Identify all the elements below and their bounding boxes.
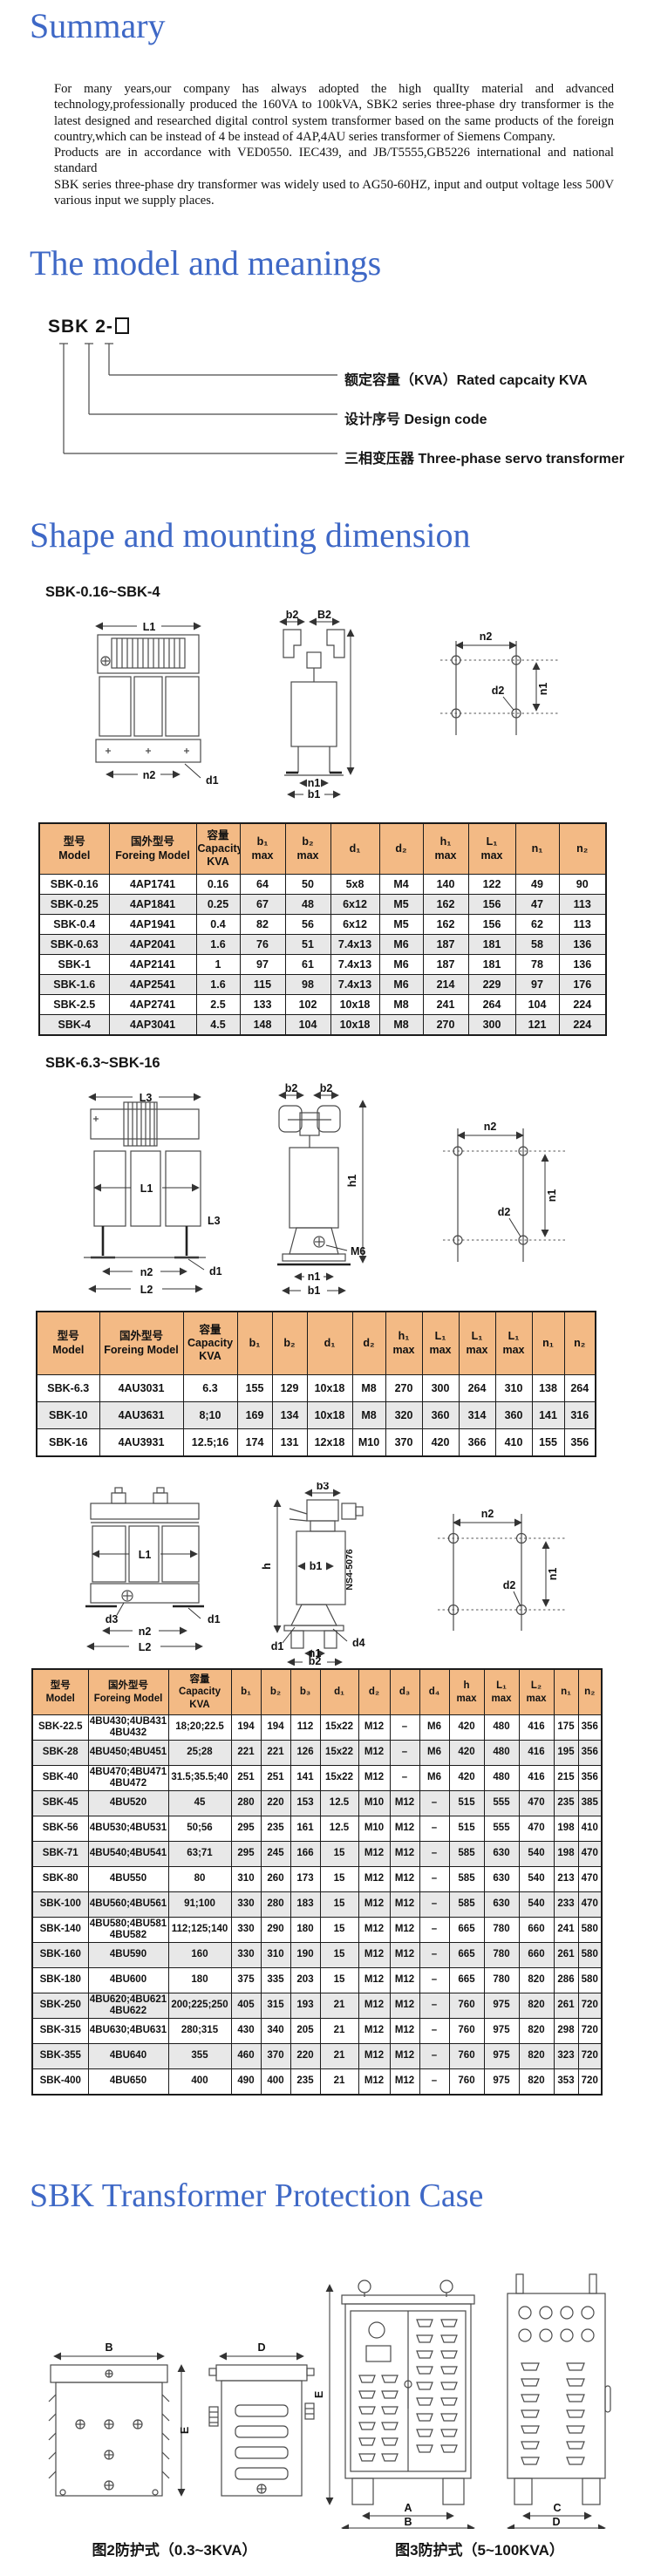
table3-header-cell: 容量 Capacity KVA (168, 1669, 231, 1715)
dim-label-E: E (179, 2427, 191, 2434)
table-cell: 470 (519, 1816, 554, 1842)
table-cell: 480 (484, 1766, 519, 1791)
table3-header-cell: b₂ (261, 1669, 290, 1715)
table-cell: 310 (261, 1943, 290, 1968)
dim-label-A: A (404, 2502, 412, 2514)
table-cell: 166 (290, 1842, 320, 1867)
set2-front-feet (84, 1226, 206, 1257)
dim-label-n1: n1 (308, 777, 321, 789)
table-row: SBK-44AP30414.514810410x18M8270300121224 (39, 1015, 606, 1036)
table-cell: 62 (515, 915, 559, 935)
table-cell: 10x18 (307, 1402, 352, 1429)
table-cell: 48 (285, 895, 330, 915)
table-cell: 194 (231, 1715, 261, 1741)
dim-label-n1: n1 (308, 1271, 321, 1283)
table-cell: 760 (449, 2069, 484, 2096)
dimension-drawing-set2: L3 L1 L3 d1 (0, 1083, 654, 1308)
table-cell: 4AP1841 (109, 895, 196, 915)
table-cell: M12 (390, 2019, 419, 2044)
table-cell: 4BU550 (88, 1867, 168, 1892)
table-cell: 63;71 (168, 1842, 231, 1867)
table-cell: – (390, 1715, 419, 1741)
table-cell: 6.3 (183, 1375, 237, 1402)
table-cell: 660 (519, 1943, 554, 1968)
table3-header-cell: b₁ (231, 1669, 261, 1715)
table-cell: 4BU650 (88, 2069, 168, 2096)
table-cell: 51 (285, 935, 330, 955)
table-cell: 220 (290, 2044, 320, 2069)
section1-label: SBK-0.16~SBK-4 (45, 584, 160, 601)
table-cell: 4BU580;4BU581 4BU582 (88, 1918, 168, 1943)
summary-paragraph: For many years,our company has always ad… (54, 81, 614, 208)
table-row: SBK-0.634AP20411.676517.4x13M61871815813… (39, 935, 606, 955)
table-cell: SBK-28 (32, 1741, 88, 1766)
table-cell: 15 (320, 1968, 358, 1993)
table2-header-cell: n₁ (532, 1312, 564, 1375)
table-cell: M10 (352, 1429, 385, 1457)
table-cell: 136 (559, 935, 606, 955)
table-cell: 720 (578, 2019, 602, 2044)
table-cell: 314 (459, 1402, 495, 1429)
table-cell: 176 (559, 975, 606, 995)
table-cell: SBK-40 (32, 1766, 88, 1791)
dimension-table-2: 型号 Model国外型号 Foreing Model容量 Capacity KV… (36, 1311, 596, 1457)
set1-hole-pattern: n2 n1 d2 (440, 630, 558, 735)
set3-side-view: b3 h b1 NS4-5076 d1 n1 (261, 1482, 365, 1666)
table-cell: M4 (379, 875, 423, 895)
table-cell: 310 (495, 1375, 532, 1402)
table-cell: M8 (379, 995, 423, 1015)
table-cell: 490 (231, 2069, 261, 2096)
table-cell: 290 (261, 1918, 290, 1943)
table-cell: M6 (379, 935, 423, 955)
table-cell: 241 (423, 995, 468, 1015)
table-cell: 298 (554, 2019, 578, 2044)
table-cell: SBK-315 (32, 2019, 88, 2044)
table-cell: SBK-56 (32, 1816, 88, 1842)
table-cell: 261 (554, 1993, 578, 2019)
table-cell: M12 (358, 1867, 390, 1892)
dimension-drawing-set1: L1 n2 d1 b2 B (0, 610, 654, 801)
table-cell: 264 (564, 1375, 596, 1402)
table-cell: 121 (515, 1015, 559, 1036)
dim-label-d1: d1 (271, 1640, 284, 1653)
table-cell: 80 (168, 1867, 231, 1892)
set2-side-view: b2 b2 h1 M6 n1 b1 (277, 1083, 365, 1297)
table-cell: 0.4 (196, 915, 240, 935)
model-diagram-lines (48, 342, 362, 466)
table-cell: 330 (231, 1918, 261, 1943)
table3-header-cell: n₂ (578, 1669, 602, 1715)
table-cell: 91;100 (168, 1892, 231, 1918)
table-cell: 430 (231, 2019, 261, 2044)
mounting-holes (449, 1534, 527, 1615)
table-cell: 410 (495, 1429, 532, 1457)
table-cell: 15 (320, 1943, 358, 1968)
table-cell: 7.4x13 (330, 975, 379, 995)
table-cell: 356 (578, 1766, 602, 1791)
case-large-side: C D (508, 2274, 610, 2528)
table-cell: SBK-0.25 (39, 895, 109, 915)
table-row: SBK-3154BU630;4BU631280;31543034020521M1… (32, 2019, 602, 2044)
table-cell: 10x18 (330, 995, 379, 1015)
table-cell: 180 (168, 1968, 231, 1993)
table1-header-cell: n₁ (515, 823, 559, 875)
table-cell: 416 (519, 1741, 554, 1766)
table-cell: 585 (449, 1867, 484, 1892)
table-cell: 280;315 (168, 2019, 231, 2044)
table-cell: M10 (358, 1791, 390, 1816)
table-row: SBK-284BU450;4BU45125;2822122112615x22M1… (32, 1741, 602, 1766)
table-cell: 515 (449, 1791, 484, 1816)
table-cell: 2.5 (196, 995, 240, 1015)
table-cell: 113 (559, 915, 606, 935)
dim-label-b2b: b2 (320, 1083, 333, 1094)
summary-paragraph-2: Products are in accordance with VED0550.… (54, 145, 614, 177)
table-cell: 174 (237, 1429, 272, 1457)
table-cell: 47 (515, 895, 559, 915)
table-cell: SBK-355 (32, 2044, 88, 2069)
table-cell: SBK-0.63 (39, 935, 109, 955)
table-cell: 233 (554, 1892, 578, 1918)
table-cell: 270 (385, 1375, 422, 1402)
page-root: Summary For many years,our company has a… (0, 0, 654, 2576)
table-cell: 720 (578, 2044, 602, 2069)
table-row: SBK-564BU530;4BU53150;5629523516112.5M10… (32, 1816, 602, 1842)
table-cell: 8;10 (183, 1402, 237, 1429)
table-cell: 21 (320, 2069, 358, 2096)
table-cell: 1.6 (196, 975, 240, 995)
table-cell: SBK-10 (37, 1402, 99, 1429)
dim-label-b3: b3 (317, 1482, 330, 1492)
dim-label-b1: b1 (308, 1285, 321, 1297)
set1-side-body (283, 630, 344, 775)
summary-paragraph-1: For many years,our company has always ad… (54, 81, 614, 145)
dim-label-b2a: b2 (285, 1083, 298, 1094)
table-cell: SBK-400 (32, 2069, 88, 2096)
table-cell: 56 (285, 915, 330, 935)
dim-label-n1: n1 (546, 1189, 558, 1203)
table1-header-cell: n₂ (559, 823, 606, 875)
table3-header-cell: 型号 Model (32, 1669, 88, 1715)
table-cell: – (419, 1816, 449, 1842)
table-cell: M12 (390, 1993, 419, 2019)
table-cell: 6x12 (330, 915, 379, 935)
table-cell: 665 (449, 1918, 484, 1943)
table-cell: 420 (422, 1429, 459, 1457)
table-cell: 1 (196, 955, 240, 975)
table-cell: 134 (272, 1402, 307, 1429)
table-cell: 4AP3041 (109, 1015, 196, 1036)
table-cell: 330 (231, 1943, 261, 1968)
dim-label-L1: L1 (143, 621, 156, 633)
table-cell: 64 (240, 875, 285, 895)
table-cell: 360 (422, 1402, 459, 1429)
table-cell: 630 (484, 1892, 519, 1918)
table-cell: 193 (290, 1993, 320, 2019)
dim-label-B: B (404, 2516, 412, 2528)
table-cell: SBK-4 (39, 1015, 109, 1036)
model-code-dash: - (106, 317, 113, 337)
table3-header-cell: 国外型号 Foreing Model (88, 1669, 168, 1715)
table3-header-cell: d₃ (390, 1669, 419, 1715)
case-small-side: D (209, 2341, 314, 2496)
table-cell: 175 (554, 1715, 578, 1741)
dim-label-D: D (552, 2516, 560, 2528)
table-row: SBK-454BU5204528022015312.5M10M12–515555… (32, 1791, 602, 1816)
case-large-front: E A B (313, 2280, 474, 2528)
table-cell: SBK-16 (37, 1429, 99, 1457)
table-cell: 400 (168, 2069, 231, 2096)
table-cell: 286 (554, 1968, 578, 1993)
table-cell: 161 (290, 1816, 320, 1842)
table-cell: 4.5 (196, 1015, 240, 1036)
table-cell: 470 (578, 1892, 602, 1918)
table1-header-cell: d₁ (330, 823, 379, 875)
table-cell: SBK-0.4 (39, 915, 109, 935)
table-cell: 585 (449, 1842, 484, 1867)
dim-label-n2: n2 (139, 1625, 152, 1638)
table-cell: 4BU600 (88, 1968, 168, 1993)
table-cell: 540 (519, 1867, 554, 1892)
table-cell: 300 (468, 1015, 515, 1036)
table-row: SBK-1804BU60018037533520315M12M12–665780… (32, 1968, 602, 1993)
table-cell: – (419, 1867, 449, 1892)
table-cell: 245 (261, 1842, 290, 1867)
table-cell: M5 (379, 895, 423, 915)
table-cell: 580 (578, 1943, 602, 1968)
table-cell: M12 (358, 2019, 390, 2044)
case-small-front: B E (49, 2341, 191, 2496)
table3-header-cell: h max (449, 1669, 484, 1715)
table-cell: 78 (515, 955, 559, 975)
table-cell: 224 (559, 995, 606, 1015)
set3-front-view: L1 d3 d1 n2 L2 (85, 1488, 221, 1653)
table-row: SBK-22.54BU430;4UB431 4BU43218;20;22.519… (32, 1715, 602, 1741)
table-cell: 198 (554, 1816, 578, 1842)
table-cell: 264 (468, 995, 515, 1015)
table-cell: 169 (237, 1402, 272, 1429)
table-cell: 820 (519, 2019, 554, 2044)
dim-label-L1: L1 (139, 1549, 152, 1561)
table-cell: 295 (231, 1842, 261, 1867)
table-cell: M6 (379, 955, 423, 975)
table-cell: 155 (237, 1375, 272, 1402)
table-cell: 270 (423, 1015, 468, 1036)
table-cell: 162 (423, 895, 468, 915)
table-cell: 6x12 (330, 895, 379, 915)
table-cell: 720 (578, 1993, 602, 2019)
table-cell: 580 (578, 1918, 602, 1943)
table-cell: 355 (168, 2044, 231, 2069)
table-cell: 975 (484, 2019, 519, 2044)
table-cell: 49 (515, 875, 559, 895)
table-cell: 195 (554, 1741, 578, 1766)
table1-header-cell: 型号 Model (39, 823, 109, 875)
dim-label-b1: b1 (308, 788, 321, 801)
table-cell: M6 (419, 1741, 449, 1766)
model-code-number: 2 (95, 317, 106, 337)
dim-label-n1: n1 (537, 683, 549, 696)
diagram-connector-lines (59, 344, 337, 453)
table-cell: 385 (578, 1791, 602, 1816)
table-cell: 480 (484, 1741, 519, 1766)
table3-header-cell: b₃ (290, 1669, 320, 1715)
table-cell: 340 (261, 2019, 290, 2044)
table-cell: 416 (519, 1715, 554, 1741)
table2-header-cell: b₂ (272, 1312, 307, 1375)
table-row: SBK-1.64AP25411.6115987.4x13M62142299717… (39, 975, 606, 995)
table-cell: 12.5 (320, 1791, 358, 1816)
set3-front-body (85, 1488, 204, 1606)
table-cell: M8 (352, 1402, 385, 1429)
table-cell: 12x18 (307, 1429, 352, 1457)
table-cell: 213 (554, 1867, 578, 1892)
table-cell: 148 (240, 1015, 285, 1036)
table-cell: 102 (285, 995, 330, 1015)
table-cell: 780 (484, 1968, 519, 1993)
table-cell: 760 (449, 1993, 484, 2019)
table-cell: 356 (578, 1715, 602, 1741)
table-cell: 630 (484, 1867, 519, 1892)
table-cell: 97 (240, 955, 285, 975)
table-cell: M6 (419, 1766, 449, 1791)
dim-label-d2: d2 (492, 685, 505, 697)
table-cell: M12 (390, 1842, 419, 1867)
table-cell: 221 (261, 1741, 290, 1766)
set2-front-view: L3 L1 L3 d1 (84, 1092, 222, 1296)
table3-header-cell: d₂ (358, 1669, 390, 1715)
caption-protection-type3: 图3防护式（5~100KVA） (366, 2538, 593, 2559)
dimension-table-1: 型号 Model国外型号 Foreing Model容量 Capacity KV… (38, 822, 607, 1036)
set2-side-body (277, 1106, 351, 1264)
dim-label-n2: n2 (484, 1121, 497, 1133)
table-cell: 4BU630;4BU631 (88, 2019, 168, 2044)
table-cell: 370 (261, 2044, 290, 2069)
table-cell: M12 (358, 1943, 390, 1968)
table-cell: 4AP2041 (109, 935, 196, 955)
table-cell: SBK-250 (32, 1993, 88, 2019)
table-cell: 4BU540;4BU541 (88, 1842, 168, 1867)
table-cell: 470 (578, 1842, 602, 1867)
label-ns4-5076: NS4-5076 (344, 1549, 355, 1590)
table-cell: 975 (484, 2069, 519, 2096)
table-cell: 420 (449, 1715, 484, 1741)
table-cell: 295 (231, 1816, 261, 1842)
section2-label: SBK-6.3~SBK-16 (45, 1055, 160, 1072)
table-cell: 4BU590 (88, 1943, 168, 1968)
table2-header-cell: 容量 Capacity KVA (183, 1312, 237, 1375)
table-row: SBK-0.164AP17410.1664505x8M41401224990 (39, 875, 606, 895)
table-cell: 975 (484, 1993, 519, 2019)
dim-label-L2: L2 (139, 1641, 152, 1653)
table-cell: 15 (320, 1918, 358, 1943)
table-cell: 4AP2541 (109, 975, 196, 995)
table-cell: 335 (261, 1968, 290, 1993)
table-cell: 360 (495, 1402, 532, 1429)
table3-header-cell: n₁ (554, 1669, 578, 1715)
dim-label-d3: d3 (106, 1613, 119, 1625)
table-cell: 4BU450;4BU451 (88, 1741, 168, 1766)
table-cell: SBK-160 (32, 1943, 88, 1968)
table-cell: SBK-22.5 (32, 1715, 88, 1741)
table-cell: 162 (423, 915, 468, 935)
table-row: SBK-3554BU64035546037022021M12M12–760975… (32, 2044, 602, 2069)
table2-header-row: 型号 Model国外型号 Foreing Model容量 Capacity KV… (37, 1312, 596, 1375)
table-row: SBK-104AU36318;1016913410x18M83203603143… (37, 1402, 596, 1429)
dim-label-n2: n2 (143, 769, 156, 781)
table-cell: 138 (532, 1375, 564, 1402)
set1-front-body (96, 635, 201, 762)
table-cell: 4AP2741 (109, 995, 196, 1015)
table-cell: 104 (515, 995, 559, 1015)
table-cell: 25;28 (168, 1741, 231, 1766)
table-cell: 760 (449, 2044, 484, 2069)
table-cell: 155 (532, 1429, 564, 1457)
table-cell: M12 (358, 1968, 390, 1993)
dim-label-d2: d2 (498, 1206, 511, 1218)
set3-hole-pattern: n2 n1 d2 (438, 1508, 567, 1631)
table1-header-cell: b₁ max (240, 823, 285, 875)
table2-header-cell: L₁ max (422, 1312, 459, 1375)
table-cell: – (419, 1842, 449, 1867)
model-code-box (115, 317, 129, 334)
table-cell: M12 (358, 1842, 390, 1867)
table2-header-cell: n₂ (564, 1312, 596, 1375)
table-cell: 820 (519, 2069, 554, 2096)
dim-label-b1: b1 (310, 1560, 323, 1572)
table1-header-cell: L₁ max (468, 823, 515, 875)
table-cell: M6 (419, 1715, 449, 1741)
table-cell: 67 (240, 895, 285, 915)
dim-label-h1: h1 (346, 1175, 358, 1188)
table-cell: 264 (459, 1375, 495, 1402)
table-cell: 5x8 (330, 875, 379, 895)
table-cell: 375 (231, 1968, 261, 1993)
dim-label-B: B (105, 2341, 112, 2354)
table-cell: SBK-100 (32, 1892, 88, 1918)
case-large-front-body (342, 2280, 474, 2504)
table-cell: 540 (519, 1892, 554, 1918)
table-cell: 113 (559, 895, 606, 915)
table-cell: – (419, 1918, 449, 1943)
table-row: SBK-2504BU620;4BU621 4BU622200;225;25040… (32, 1993, 602, 2019)
table-cell: 260 (261, 1867, 290, 1892)
dim-label-L1: L1 (140, 1182, 153, 1195)
case-small-side-body (209, 2365, 314, 2496)
table-cell: 665 (449, 1943, 484, 1968)
table-cell: M12 (390, 1968, 419, 1993)
table-cell: 180 (290, 1918, 320, 1943)
set2-front-body (91, 1102, 201, 1226)
table-cell: 21 (320, 2019, 358, 2044)
table-cell: – (419, 1993, 449, 2019)
table-cell: 31.5;35.5;40 (168, 1766, 231, 1791)
table-row: SBK-164AU393112.5;1617413112x18M10370420… (37, 1429, 596, 1457)
dim-label-D: D (257, 2341, 265, 2354)
table-cell: 720 (578, 2069, 602, 2096)
dim-label-h: h (261, 1563, 273, 1570)
table-cell: 261 (554, 1943, 578, 1968)
table2-header-cell: L₁ max (495, 1312, 532, 1375)
dim-label-E: E (313, 2391, 325, 2398)
table-cell: 310 (231, 1867, 261, 1892)
table-cell: 131 (272, 1429, 307, 1457)
table-cell: 555 (484, 1816, 519, 1842)
table-cell: 330 (231, 1892, 261, 1918)
table-cell: 76 (240, 935, 285, 955)
dim-label-L2: L2 (140, 1284, 153, 1296)
